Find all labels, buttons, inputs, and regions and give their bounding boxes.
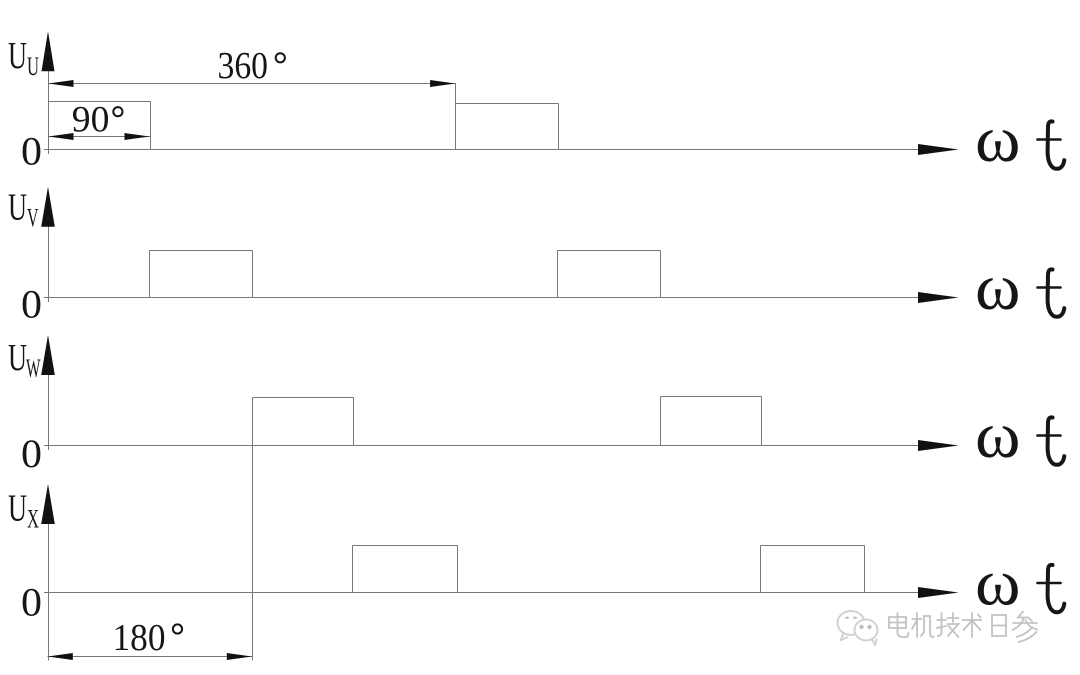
svg-text:90: 90 — [72, 100, 110, 141]
svg-text:U: U — [27, 52, 39, 81]
svg-text:180: 180 — [113, 617, 166, 659]
svg-text:360: 360 — [218, 45, 269, 87]
svg-text:U: U — [8, 187, 27, 229]
svg-text:0: 0 — [21, 580, 42, 625]
svg-text:0: 0 — [21, 129, 42, 174]
svg-text:U: U — [8, 35, 27, 77]
svg-text:0: 0 — [21, 431, 42, 476]
svg-text:U: U — [8, 337, 27, 379]
svg-text:X: X — [27, 505, 39, 534]
svg-text:W: W — [26, 354, 41, 383]
svg-text:ω: ω — [975, 547, 1021, 620]
svg-text:V: V — [27, 204, 39, 233]
svg-text:ω: ω — [975, 399, 1021, 472]
svg-text:ω: ω — [975, 103, 1021, 176]
svg-text:U: U — [8, 488, 27, 530]
svg-text:0: 0 — [21, 282, 42, 327]
svg-text:ω: ω — [975, 251, 1021, 324]
